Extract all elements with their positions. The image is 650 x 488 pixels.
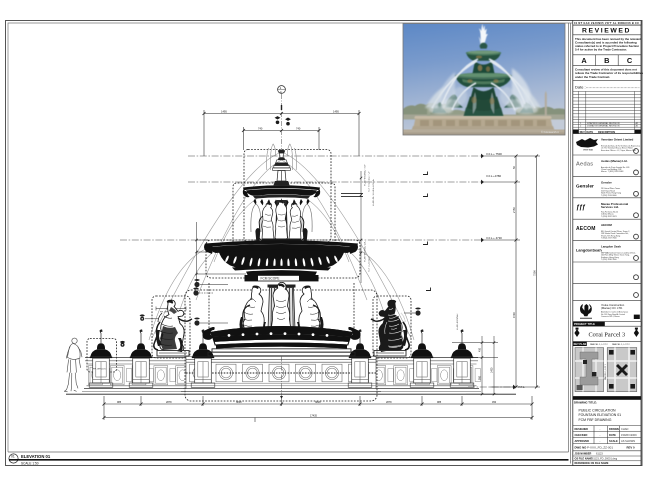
svg-text:VENETIAN: VENETIAN — [583, 149, 594, 152]
svg-text:Services Ltd.: Services Ltd. — [601, 205, 619, 209]
svg-text:-: - — [600, 428, 601, 431]
svg-text:5.4 for action by the Trade Co: 5.4 for action by the Trade Contractor. — [575, 48, 627, 52]
svg-text:F.F.L.+ 7500: F.F.L.+ 7500 — [487, 152, 503, 156]
svg-text:2878: 2878 — [166, 401, 172, 404]
svg-text:FCM FINISHED: FCM FINISHED — [457, 313, 459, 330]
svg-text:450: 450 — [492, 401, 497, 404]
svg-text:985: 985 — [117, 401, 122, 404]
svg-text:985: 985 — [437, 401, 442, 404]
svg-text:A: A — [581, 56, 587, 65]
svg-text:REVIEWED: REVIEWED — [582, 28, 631, 35]
svg-text:DESIGNED: DESIGNED — [575, 427, 589, 431]
svg-text:PARCEL 1, LOT 2: PARCEL 1, LOT 2 — [590, 343, 608, 346]
svg-text:KEY PLAN: KEY PLAN — [574, 343, 587, 346]
svg-text:A: A — [280, 90, 282, 94]
svg-text:61123_FD_00001.dwg: 61123_FD_00001.dwg — [592, 457, 618, 460]
svg-text:ELEVATION 01: ELEVATION 01 — [21, 454, 51, 459]
svg-text:CHECKED: CHECKED — [575, 433, 588, 437]
svg-text:01: 01 — [11, 455, 15, 459]
svg-text:Aedas: Aedas — [576, 162, 593, 168]
svg-text:PARCEL 1, LOT 2: PARCEL 1, LOT 2 — [612, 343, 630, 346]
svg-text:AECOM: AECOM — [601, 223, 612, 227]
svg-text:61123: 61123 — [596, 453, 603, 456]
svg-text:Macau T (853) 2833 1088: Macau T (853) 2833 1088 — [601, 171, 623, 173]
svg-text:Langdon Seah: Langdon Seah — [601, 245, 621, 249]
svg-text:PUBLIC CIRCULATION: PUBLIC CIRCULATION — [579, 409, 617, 413]
svg-text:3818: 3818 — [236, 401, 242, 404]
svg-text:1400: 1400 — [491, 367, 494, 373]
svg-text:P-XXX_FD_ZZ-001: P-XXX_FD_ZZ-001 — [587, 445, 613, 449]
svg-text:FBF CONNECT: FBF CONNECT — [369, 255, 371, 272]
svg-text:ƒƒƒ: ƒƒƒ — [576, 204, 586, 211]
svg-text:C: C — [627, 56, 633, 65]
svg-text:REFERENCE OS FILE NAME: REFERENCE OS FILE NAME — [575, 462, 609, 465]
svg-text:-: - — [600, 440, 601, 443]
svg-text:AECOM: AECOM — [576, 226, 596, 232]
svg-text:3818: 3818 — [315, 401, 321, 404]
svg-text:LangdonSeah: LangdonSeah — [576, 247, 602, 252]
svg-text:2750: 2750 — [512, 207, 516, 213]
svg-text:Gensler: Gensler — [601, 180, 613, 184]
svg-text:Date :: Date : — [575, 85, 586, 90]
svg-text:FCM SCOPE: FCM SCOPE — [261, 277, 280, 281]
svg-text:1495: 1495 — [221, 109, 227, 113]
svg-text:740: 740 — [258, 126, 263, 130]
svg-text:DRAWING TITLE:: DRAWING TITLE: — [574, 401, 597, 405]
svg-text:Aedas (Macau) Ltd.: Aedas (Macau) Ltd. — [601, 159, 628, 163]
svg-text:REV 0: REV 0 — [627, 445, 636, 449]
svg-text:CHAD: CHAD — [621, 427, 628, 431]
svg-text:2878: 2878 — [386, 401, 392, 404]
svg-text:Gensler: Gensler — [576, 183, 594, 189]
svg-text:SCALE 1:50: SCALE 1:50 — [21, 462, 39, 466]
svg-text:4730: 4730 — [512, 312, 516, 318]
svg-text:01 NT GAC 29JUN05 VO'T AL 06DE: 01 NT GAC 29JUN05 VO'T AL 06DEC06 B CC — [574, 21, 639, 25]
svg-text:450: 450 — [479, 347, 482, 352]
svg-text:15/MAY/2009: 15/MAY/2009 — [621, 433, 637, 437]
svg-text:F.F.L.+ 4730: F.F.L.+ 4730 — [487, 236, 503, 240]
svg-text:Executive Offices - L2, Taipa,: Executive Offices - L2, Taipa, Macau SAR — [601, 149, 637, 152]
svg-text:JOB NUMBER: JOB NUMBER — [575, 453, 592, 456]
svg-text:FPL WP-01 S: FPL WP-01 S — [93, 369, 106, 371]
svg-text:FOUNTAIN ELEVATION 01: FOUNTAIN ELEVATION 01 — [579, 413, 622, 417]
svg-text:B: B — [604, 56, 609, 65]
svg-text:7500: 7500 — [532, 270, 536, 276]
svg-text:OS FILE NAME: OS FILE NAME — [575, 457, 593, 460]
svg-text:© Fotosearch.it: © Fotosearch.it — [541, 130, 559, 134]
svg-text:PARCEL 1, LOT 1: PARCEL 1, LOT 1 — [604, 363, 607, 380]
svg-text:Cотаі Pагсеl 3: Cотаі Pагсеl 3 — [589, 332, 626, 339]
svg-text:APPROVED: APPROVED — [575, 439, 590, 443]
svg-text:FCM FINISHED LVL: FCM FINISHED LVL — [364, 240, 366, 262]
svg-text:SCALE: SCALE — [609, 439, 618, 443]
svg-text:17435: 17435 — [310, 414, 318, 417]
svg-text:DATE: DATE — [609, 433, 616, 437]
svg-text:1495: 1495 — [333, 109, 339, 113]
svg-text:Venetian Orient Limited: Venetian Orient Limited — [601, 138, 634, 142]
svg-text:950: 950 — [479, 375, 482, 380]
svg-text:GENERAL REVISION: GENERAL REVISION — [598, 122, 620, 125]
svg-text:02/APR/09: 02/APR/09 — [587, 122, 598, 125]
svg-text:15/MAY/09: 15/MAY/09 — [587, 125, 598, 128]
svg-text:F.F.L.+4780: F.F.L.+4780 — [487, 174, 502, 178]
svg-text:T (852) 2599 8000: T (852) 2599 8000 — [601, 195, 617, 197]
svg-text:DRAWN: DRAWN — [609, 427, 619, 431]
svg-text:under the Trade Contract.: under the Trade Contract. — [575, 75, 610, 79]
svg-text:-: - — [600, 434, 601, 437]
svg-text:Comercio 14F-I, Macau: Comercio 14F-I, Macau — [601, 316, 620, 318]
svg-text:AS SHOWN: AS SHOWN — [621, 439, 635, 443]
svg-text:DWG NO: DWG NO — [575, 445, 588, 449]
svg-text:GENERAL REVISION: GENERAL REVISION — [598, 125, 620, 128]
svg-text:T (853) 2837 2623: T (853) 2837 2623 — [601, 216, 617, 218]
svg-text:FCM FINISHED TOP: FCM FINISHED TOP — [364, 164, 366, 186]
svg-text:T (852) 2317 7600: T (852) 2317 7600 — [601, 238, 617, 240]
svg-text:T (852) 2830 3500: T (852) 2830 3500 — [601, 259, 617, 261]
svg-text:FBF FINISHED TOP: FBF FINISHED TOP — [369, 171, 371, 192]
svg-text:(Macau) CO. LTD.: (Macau) CO. LTD. — [601, 306, 623, 310]
svg-text:FCM FBF SCOPE DIVIDE: FCM FBF SCOPE DIVIDE — [373, 179, 375, 206]
svg-text:FCM FBF DRAWING: FCM FBF DRAWING — [579, 418, 612, 422]
svg-text:740: 740 — [296, 126, 301, 130]
svg-text:PROJECT TITLE: PROJECT TITLE — [574, 322, 595, 326]
